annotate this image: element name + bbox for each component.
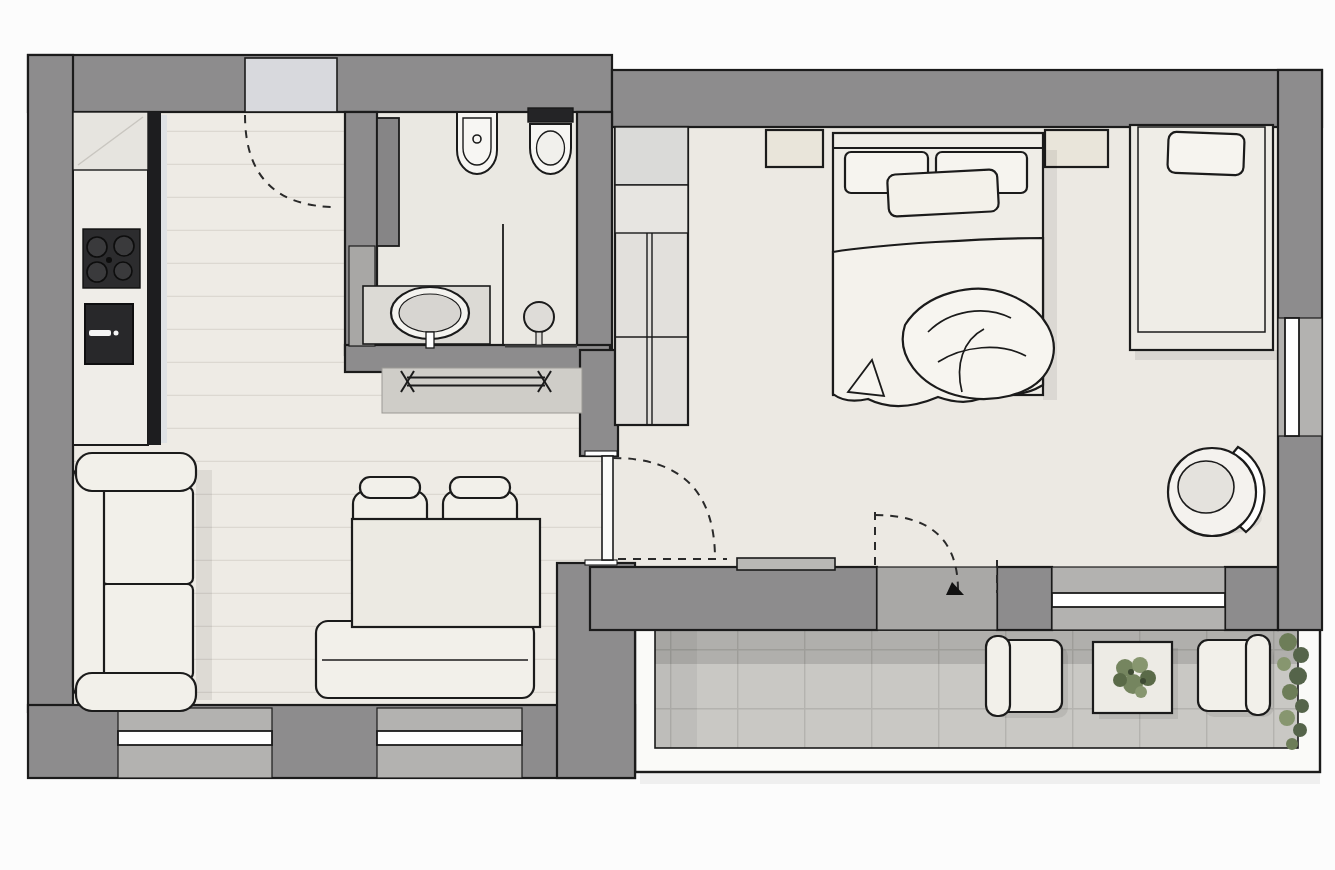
sofa-seat-cushion [101, 584, 193, 679]
balcony-drop-shadow [640, 772, 1320, 784]
living-window1-glass [118, 731, 272, 745]
cooktop-knob [106, 257, 112, 263]
wall-bedroom-west-pillar [580, 350, 618, 456]
burner [87, 237, 107, 257]
floor-plan [0, 0, 1335, 870]
burner [114, 236, 134, 256]
wardrobe-second-section [615, 185, 688, 233]
oven-handle [89, 330, 111, 336]
dining-table [352, 519, 540, 627]
toilet-cistern [528, 108, 573, 122]
chair-cushion [1178, 461, 1234, 513]
burner [87, 262, 107, 282]
outdoor-armchair-right [1198, 635, 1274, 717]
oven [85, 304, 133, 364]
balcony-door-recess [877, 567, 997, 630]
door-threshold-panel [737, 558, 835, 570]
daybed-pillow [1167, 132, 1244, 176]
wall-bedroom-south-b [997, 567, 1052, 630]
chair-headrest [360, 477, 420, 498]
wardrobe [615, 127, 688, 425]
sofa-backrest [73, 468, 104, 696]
swivel-chair [1168, 447, 1264, 536]
oven-knob [114, 331, 119, 336]
shower-stem [536, 332, 542, 346]
floor-plan-page [0, 0, 1335, 870]
armchair-back [986, 636, 1010, 716]
vanity-basin-inner [399, 294, 461, 332]
vanity-faucet [426, 332, 434, 348]
counter-edge-strip [148, 112, 161, 445]
balcony-left-shadow [655, 630, 697, 748]
sofa-seat-cushion [101, 487, 193, 584]
outdoor-armchair-left [986, 636, 1068, 718]
wall-bedroom-south-c [1225, 567, 1278, 630]
accent-pillow [887, 169, 999, 217]
cooktop [83, 229, 140, 288]
living-window2-glass [377, 731, 522, 745]
shower-head [524, 302, 554, 332]
wall-top-right [612, 70, 1322, 127]
double-bed [833, 133, 1057, 406]
single-daybed [1130, 125, 1278, 360]
armchair-back [1246, 635, 1270, 715]
nightstand-left [766, 130, 823, 167]
bathroom-tall-cabinet [377, 118, 399, 246]
chair-headrest [450, 477, 510, 498]
kitchen [73, 112, 167, 445]
radiator-bench [382, 368, 582, 413]
bedroom-east-window-glass [1285, 318, 1299, 436]
burner [114, 262, 132, 280]
counter-edge-highlight [161, 115, 167, 443]
entrance-door-panel [245, 58, 337, 112]
sofa [73, 453, 212, 711]
toilet-bowl-inner [537, 131, 565, 165]
sofa-shadow [196, 470, 212, 700]
sofa-armrest [76, 673, 196, 711]
wardrobe-top-section [615, 127, 688, 185]
daybed-shadow [1135, 350, 1278, 360]
wall-bedroom-south-a [590, 567, 877, 630]
sofa-armrest [76, 453, 196, 491]
bedroom-south-window-glass [1052, 593, 1225, 607]
wall-left [28, 55, 73, 712]
bedroom-door-leaf [602, 456, 613, 560]
